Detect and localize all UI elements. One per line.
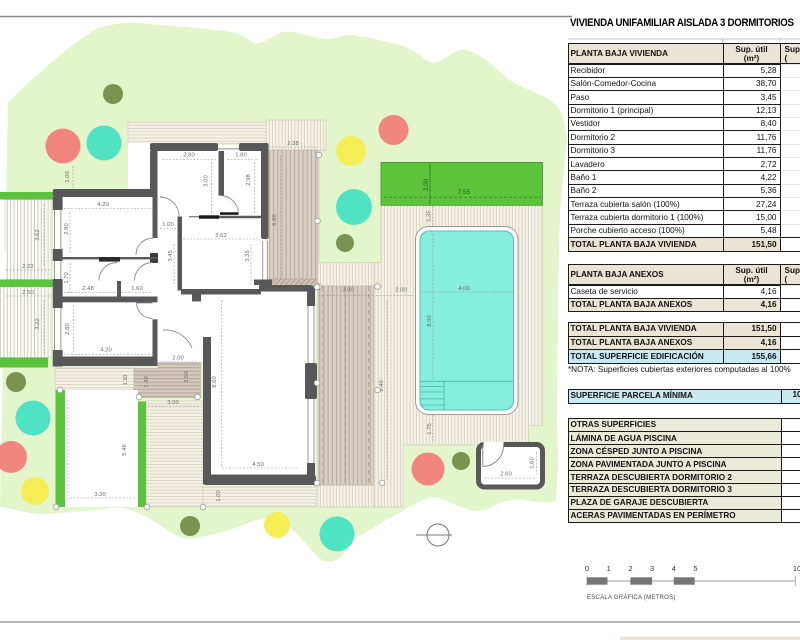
svg-text:3.35: 3.35 [245,250,251,262]
svg-text:1.60: 1.60 [530,457,536,469]
svg-text:1.00: 1.00 [162,222,174,228]
svg-text:1.40: 1.40 [144,376,150,388]
svg-text:2.22: 2.22 [22,264,33,270]
svg-text:3.45: 3.45 [168,250,174,262]
svg-text:4: 4 [672,564,676,573]
svg-text:5: 5 [693,564,697,573]
svg-text:3.22: 3.22 [35,318,41,329]
svg-text:4.20: 4.20 [97,202,109,208]
svg-text:2.50: 2.50 [184,371,190,383]
svg-text:3.00: 3.00 [167,400,179,406]
svg-text:2: 2 [628,564,632,573]
svg-text:ESCALA GRÁFICA (METROS): ESCALA GRÁFICA (METROS) [587,594,676,601]
svg-text:1.80: 1.80 [235,153,247,159]
svg-text:0: 0 [585,564,589,573]
svg-text:2.00: 2.00 [172,356,184,362]
svg-text:3.00: 3.00 [342,288,354,294]
svg-text:2.98: 2.98 [246,174,252,186]
svg-text:8.60: 8.60 [212,376,218,388]
svg-text:4.00: 4.00 [458,286,470,292]
svg-text:2.48: 2.48 [82,286,94,292]
svg-text:2.50: 2.50 [22,290,34,296]
svg-text:1.75: 1.75 [427,423,433,435]
svg-text:1.70: 1.70 [64,272,70,284]
svg-text:1: 1 [607,564,611,573]
svg-text:2.80: 2.80 [183,153,195,159]
svg-text:2.60: 2.60 [500,472,512,478]
svg-text:1.35: 1.35 [427,210,433,222]
svg-text:2.80: 2.80 [65,323,71,335]
svg-text:2.80: 2.80 [64,223,70,235]
svg-text:1.10: 1.10 [123,375,129,386]
svg-text:2.38: 2.38 [287,141,299,147]
svg-text:3.30: 3.30 [94,492,106,498]
svg-text:4.50: 4.50 [252,462,264,468]
svg-text:1.60: 1.60 [131,286,143,292]
svg-text:3: 3 [650,564,654,573]
svg-text:1.00: 1.00 [216,490,222,502]
svg-text:5.46: 5.46 [122,444,128,456]
svg-text:4.20: 4.20 [100,348,112,354]
svg-text:1.00: 1.00 [65,171,71,183]
svg-text:2.00: 2.00 [423,178,430,191]
svg-text:2.00: 2.00 [395,288,407,294]
svg-text:6.00: 6.00 [272,214,278,226]
svg-text:10: 10 [793,564,800,573]
svg-text:8.00: 8.00 [427,315,433,327]
svg-text:3.62: 3.62 [35,229,41,240]
svg-text:7.55: 7.55 [458,189,471,196]
svg-text:3.62: 3.62 [215,233,226,239]
svg-text:3.00: 3.00 [204,175,210,187]
